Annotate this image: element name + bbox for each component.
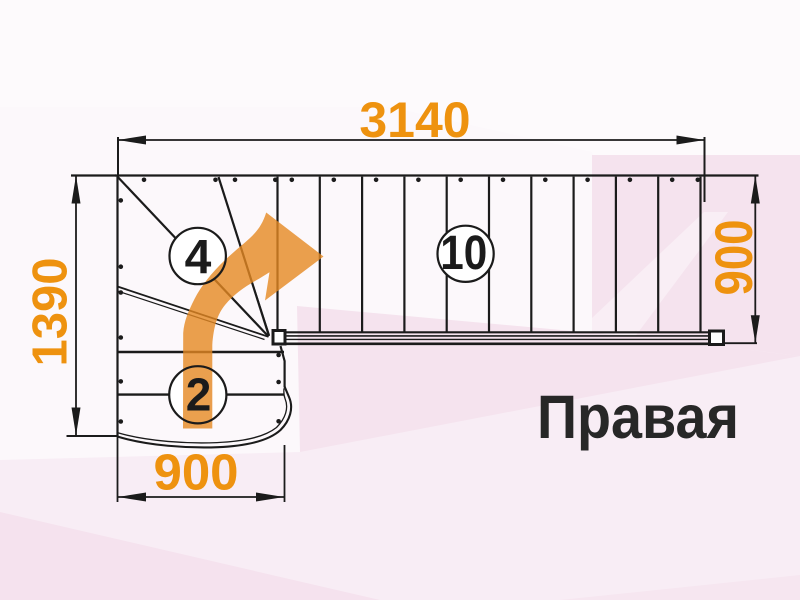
svg-text:3140: 3140 [359,92,470,148]
svg-text:10: 10 [440,227,487,280]
svg-text:900: 900 [153,444,238,501]
svg-text:1390: 1390 [24,257,78,366]
svg-text:Правая: Правая [537,383,739,451]
svg-text:4: 4 [185,232,212,285]
svg-text:2: 2 [186,369,212,421]
svg-text:900: 900 [705,220,764,296]
